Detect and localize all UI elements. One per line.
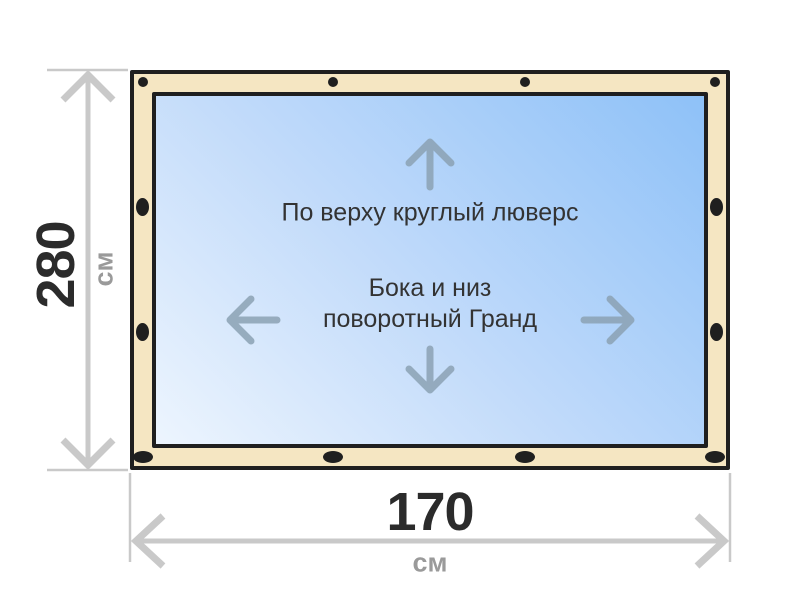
sides-bottom-note: Бока и низповоротный Гранд	[323, 273, 537, 335]
dimension-diagram: По верху круглый люверс Бока и низповоро…	[0, 0, 800, 600]
up-arrow-icon	[409, 142, 451, 187]
left-arrow-icon	[230, 299, 277, 341]
height-dimension-unit: см	[89, 252, 120, 287]
width-dimension-value: 170	[386, 481, 473, 543]
sides-bottom-note-line2: поворотный Гранд	[323, 305, 537, 333]
sides-bottom-note-line1: Бока и низ	[369, 274, 492, 302]
down-arrow-icon	[409, 349, 451, 390]
height-dimension-value: 280	[25, 221, 87, 308]
right-arrow-icon	[584, 299, 631, 341]
top-grommet-note: По верху круглый люверс	[281, 198, 578, 229]
width-dimension-unit: см	[413, 548, 448, 579]
